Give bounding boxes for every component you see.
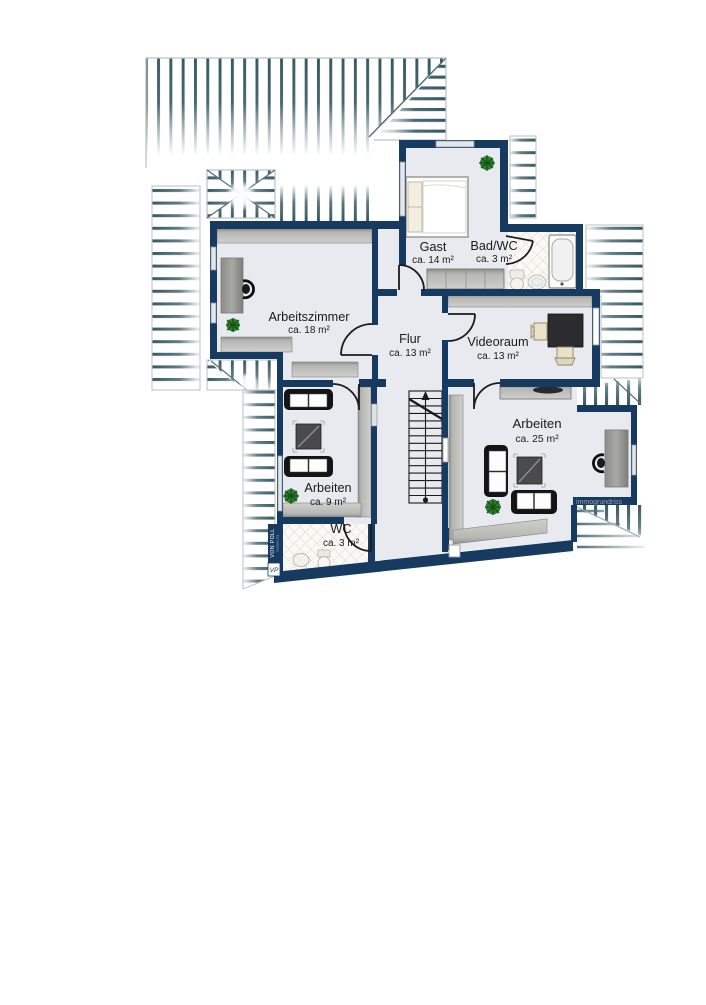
svg-text:ca. 9 m²: ca. 9 m²	[310, 497, 347, 508]
svg-text:Gast: Gast	[420, 240, 447, 254]
svg-text:immogrundriss: immogrundriss	[576, 499, 622, 506]
svg-text:WC: WC	[330, 522, 351, 536]
svg-text:VON POLL: VON POLL	[270, 528, 276, 557]
svg-text:ca. 14 m²: ca. 14 m²	[412, 255, 454, 266]
svg-text:Flur: Flur	[399, 332, 422, 346]
svg-text:Bad/WC: Bad/WC	[470, 239, 517, 253]
svg-text:ca. 13 m²: ca. 13 m²	[389, 348, 431, 359]
svg-text:ca. 25 m²: ca. 25 m²	[515, 434, 559, 445]
svg-text:Videoraum: Videoraum	[467, 335, 528, 349]
svg-text:ca. 13 m²: ca. 13 m²	[477, 351, 519, 362]
svg-text:IMMOBILIEN: IMMOBILIEN	[277, 534, 280, 551]
svg-text:ca. 3 m²: ca. 3 m²	[476, 254, 513, 265]
svg-text:Arbeiten: Arbeiten	[512, 416, 561, 431]
svg-text:Arbeiten: Arbeiten	[304, 481, 351, 495]
svg-text:VP: VP	[270, 567, 279, 574]
svg-text:ca. 3 m²: ca. 3 m²	[323, 538, 360, 549]
svg-text:Arbeitszimmer: Arbeitszimmer	[268, 310, 350, 324]
svg-text:ca. 18 m²: ca. 18 m²	[288, 325, 330, 336]
